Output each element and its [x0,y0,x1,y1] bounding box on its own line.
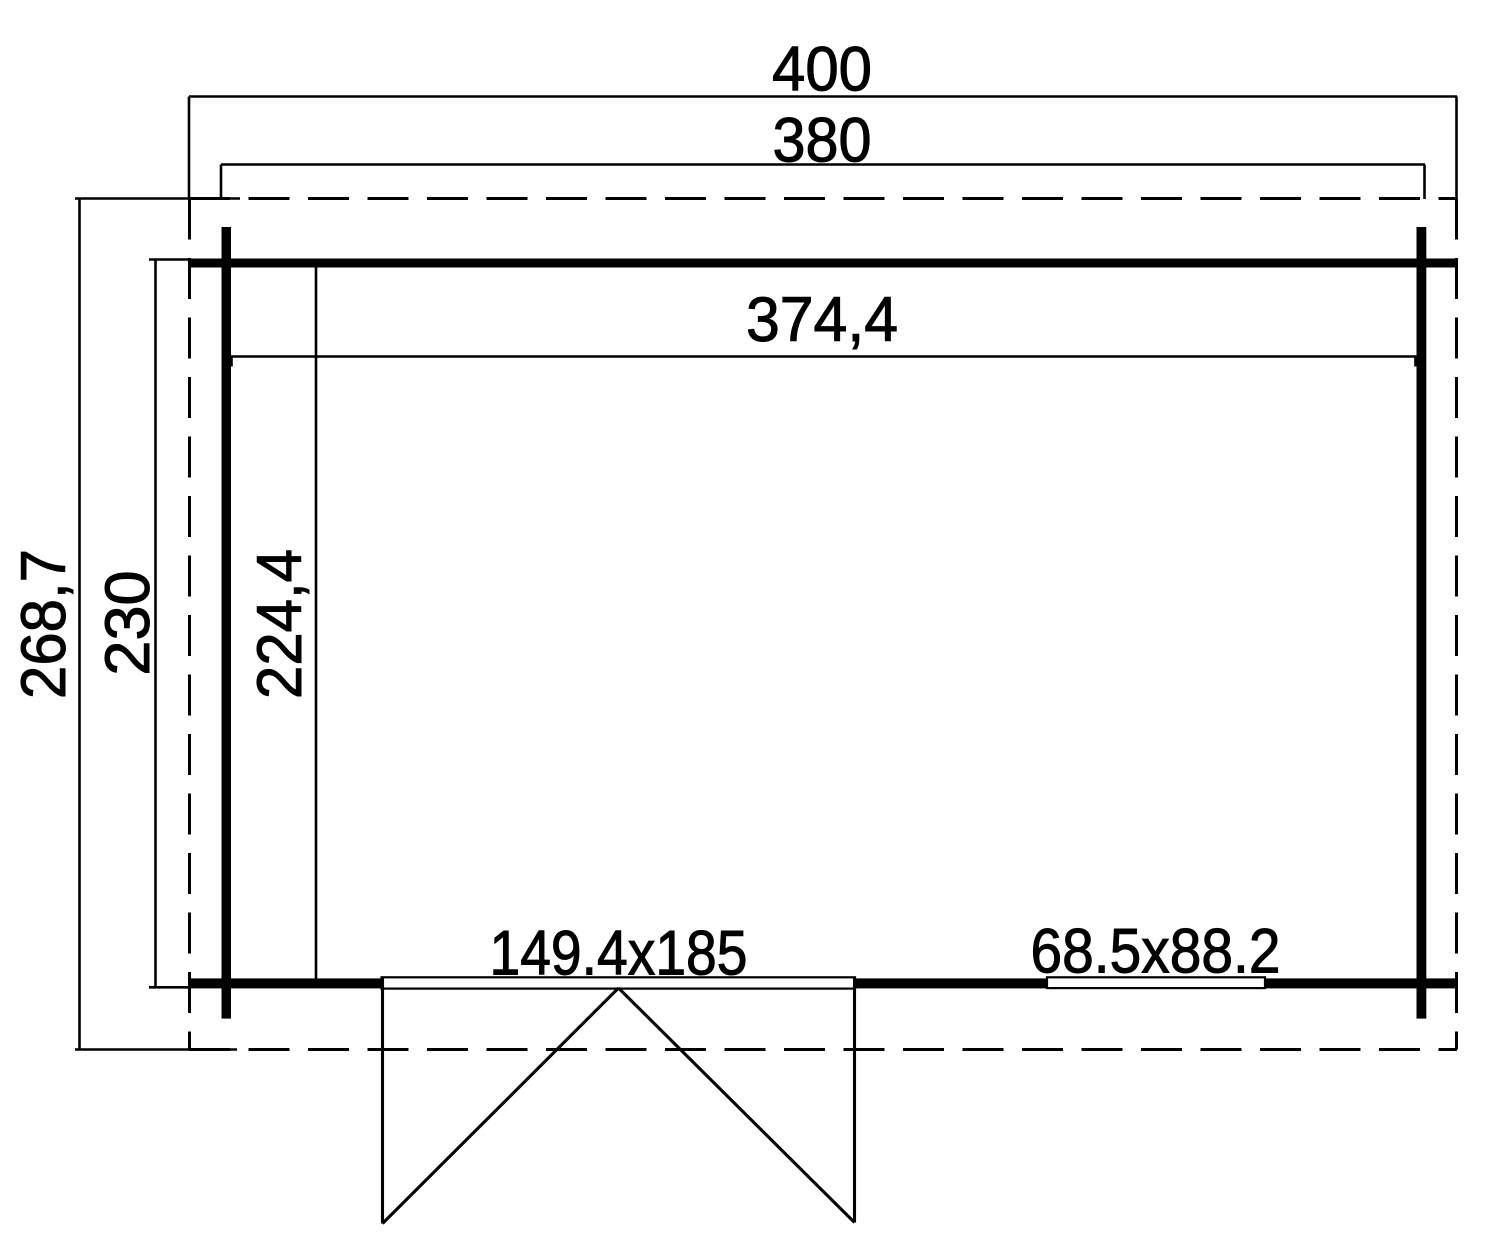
svg-text:400: 400 [772,35,872,105]
svg-text:268,7: 268,7 [9,549,79,699]
svg-text:149.4x185: 149.4x185 [490,919,748,989]
svg-text:380: 380 [773,106,872,176]
svg-text:374,4: 374,4 [746,285,898,355]
svg-text:68.5x88.2: 68.5x88.2 [1031,917,1281,987]
svg-text:230: 230 [93,570,163,675]
svg-text:224,4: 224,4 [245,549,315,699]
